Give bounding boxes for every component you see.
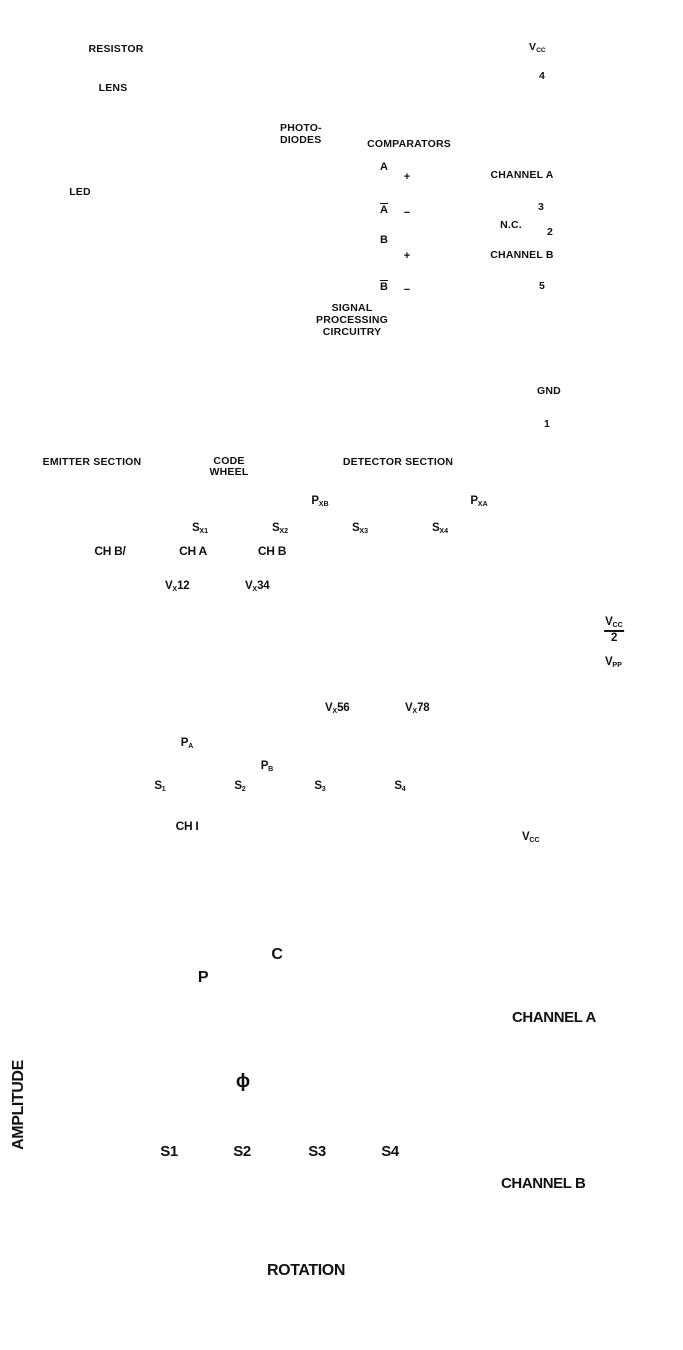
comparator-a-plus-sign: +: [404, 172, 410, 183]
crossing-label-vx78: VX78: [405, 703, 429, 715]
dim-label-s4: S4: [394, 781, 405, 793]
dim-label-c: C: [267, 947, 286, 963]
dim-label-s2: S2: [234, 781, 245, 793]
dim-label-sx4: SX4: [432, 523, 448, 535]
dim-label-sx1: SX1: [192, 523, 208, 535]
photodiodes-label-line2: DIODES: [280, 135, 321, 146]
dim-label-pb: PB: [261, 761, 274, 773]
dim-label-sx3: SX3: [352, 523, 368, 535]
rotation-axis-label: ROTATION: [267, 1263, 345, 1279]
channel-b-waveform-label: CHANNEL B: [501, 1176, 585, 1191]
spc-label-line1: SIGNAL: [332, 303, 373, 314]
encoder-diagram-artwork: [0, 0, 683, 1350]
vpp-label: VPP: [605, 657, 622, 669]
lens-label: LENS: [99, 83, 128, 94]
dim-label-pxb: PXB: [311, 496, 328, 508]
vcc-pin-label: VCC: [529, 42, 546, 54]
curve-label-ch-a: CH A: [179, 545, 207, 557]
channel-a-pin-label: CHANNEL A: [490, 170, 553, 181]
code-wheel-label-line1: CODE: [213, 456, 244, 467]
spc-label-line3: CIRCUITRY: [323, 327, 382, 338]
nc-pin-label: N.C.: [500, 220, 522, 231]
signal-b-bar-label: B: [380, 282, 388, 293]
pin-number-3: 3: [538, 202, 544, 213]
signal-b-label: B: [380, 235, 388, 246]
dim-label-s4-bottom: S4: [377, 1144, 403, 1159]
dim-label-s1-bottom: S1: [156, 1144, 182, 1159]
gnd-pin-label: GND: [537, 386, 561, 397]
emitter-section-label: EMITTER SECTION: [43, 457, 142, 468]
comparator-b-minus-sign: −: [404, 285, 410, 296]
amplitude-axis-label: AMPLITUDE: [11, 1060, 27, 1150]
dim-label-s1: S1: [154, 781, 165, 793]
dim-label-phi: ϕ: [232, 1072, 254, 1091]
datasheet-figure-page: RESISTOR LENS LED PHOTO- DIODES COMPARAT…: [0, 0, 683, 1350]
pin-number-2: 2: [547, 227, 553, 238]
dim-label-s3: S3: [314, 781, 325, 793]
spc-label-line2: PROCESSING: [316, 315, 388, 326]
pin-number-5: 5: [539, 281, 545, 292]
dim-label-s2-bottom: S2: [229, 1144, 255, 1159]
signal-a-label: A: [380, 162, 388, 173]
curve-label-ch-b-inverted: CH B/: [94, 545, 125, 557]
comparators-label: COMPARATORS: [367, 139, 451, 150]
pin-number-4: 4: [539, 71, 545, 82]
code-wheel-label-line2: WHEEL: [210, 467, 249, 478]
crossing-label-vx56: VX56: [325, 703, 349, 715]
vcc-over-2-label: VCC 2: [604, 617, 624, 645]
curve-label-ch-i: CH I: [176, 820, 199, 832]
led-label: LED: [69, 187, 91, 198]
pin-number-1: 1: [544, 419, 550, 430]
resistor-label: RESISTOR: [88, 44, 143, 55]
crossing-label-vx34: VX34: [245, 581, 269, 593]
crossing-label-vx12: VX12: [165, 581, 189, 593]
channel-b-pin-label: CHANNEL B: [490, 250, 553, 261]
comparator-a-minus-sign: −: [404, 208, 410, 219]
chi-vcc-label: VCC: [522, 832, 540, 844]
channel-a-waveform-label: CHANNEL A: [512, 1010, 596, 1025]
dim-label-sx2: SX2: [272, 523, 288, 535]
photodiodes-label-line1: PHOTO-: [280, 123, 322, 134]
dim-label-p: P: [194, 970, 212, 986]
curve-label-ch-b: CH B: [258, 545, 286, 557]
comparator-b-plus-sign: +: [404, 251, 410, 262]
dim-label-pxa: PXA: [470, 496, 487, 508]
detector-section-label: DETECTOR SECTION: [343, 457, 453, 468]
dim-label-pa: PA: [181, 738, 194, 750]
dim-label-s3-bottom: S3: [304, 1144, 330, 1159]
signal-a-bar-label: A: [380, 205, 388, 216]
